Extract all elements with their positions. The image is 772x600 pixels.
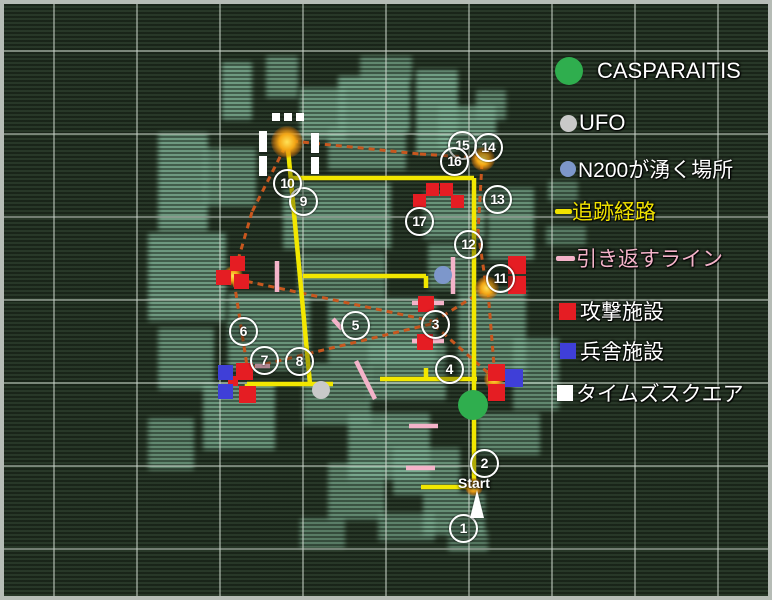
- legend-label-ufo: UFO: [579, 110, 625, 136]
- waypoint-2: 2: [470, 449, 499, 478]
- times-square-legend-swatch-icon: [557, 385, 573, 401]
- legend-label-attack-facility: 攻撃施設: [580, 296, 664, 326]
- ufo-legend-icon: [560, 115, 577, 132]
- waypoint-8: 8: [285, 347, 314, 376]
- waypoint-16: 16: [440, 147, 469, 176]
- waypoint-7: 7: [250, 346, 279, 375]
- waypoint-14: 14: [474, 133, 503, 162]
- legend-item-times-square: タイムズスクエア: [557, 378, 744, 408]
- tracking-route-legend-dash-icon: [555, 209, 572, 214]
- legend-item-casparaitis: CASPARAITIS: [555, 57, 741, 85]
- waypoint-10: 10: [273, 169, 302, 198]
- attack-facility-legend-swatch-icon: [559, 303, 576, 320]
- start-label: Start: [458, 475, 490, 491]
- game-map-screen: 1234567891011121314151617 Start CASPARAI…: [0, 0, 772, 600]
- player-arrow-icon: [470, 490, 484, 518]
- legend-item-ufo: UFO: [560, 110, 625, 136]
- casparaitis-legend-icon: [555, 57, 583, 85]
- waypoint-5: 5: [341, 311, 370, 340]
- legend-item-attack-facility: 攻撃施設: [559, 296, 664, 326]
- legend-item-n200-spawn: N200が湧く場所: [560, 154, 733, 184]
- waypoint-17: 17: [405, 207, 434, 236]
- legend-label-turnback-line: 引き返すライン: [576, 243, 723, 273]
- legend-label-times-square: タイムズスクエア: [576, 378, 744, 408]
- waypoint-3: 3: [421, 310, 450, 339]
- n200-spawn-legend-icon: [560, 161, 576, 177]
- legend-label-casparaitis: CASPARAITIS: [597, 58, 741, 84]
- turnback-line-legend-dash-icon: [556, 256, 575, 261]
- waypoint-11: 11: [486, 264, 515, 293]
- legend-item-turnback-line: 引き返すライン: [556, 243, 723, 273]
- barracks-facility-legend-swatch-icon: [560, 343, 576, 359]
- legend-item-tracking-route: 追跡経路: [555, 196, 656, 226]
- waypoint-13: 13: [483, 185, 512, 214]
- waypoint-6: 6: [229, 317, 258, 346]
- waypoint-12: 12: [454, 230, 483, 259]
- legend-item-barracks-facility: 兵舎施設: [560, 336, 664, 366]
- legend-label-tracking-route: 追跡経路: [572, 196, 656, 226]
- waypoint-4: 4: [435, 355, 464, 384]
- legend-label-barracks-facility: 兵舎施設: [580, 336, 664, 366]
- legend-label-n200-spawn: N200が湧く場所: [578, 154, 733, 184]
